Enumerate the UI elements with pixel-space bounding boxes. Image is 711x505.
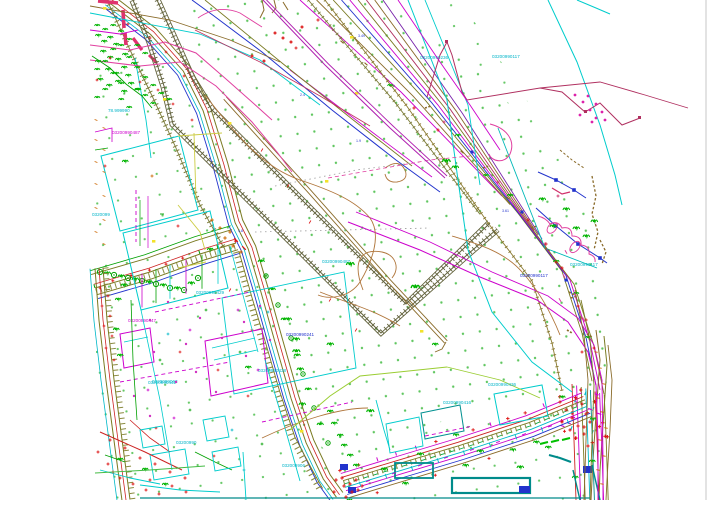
svg-text:03200990: 03200990	[176, 440, 197, 445]
svg-text:03200990236: 03200990236	[420, 55, 449, 60]
svg-text:3.49: 3.49	[358, 34, 365, 38]
svg-text:1.9: 1.9	[356, 139, 361, 143]
svg-text:78.999990: 78.999990	[108, 108, 130, 113]
svg-text:03200990416: 03200990416	[443, 400, 472, 405]
svg-text:03200990241: 03200990241	[286, 332, 315, 337]
svg-text:032009906: 032009906	[282, 463, 305, 468]
svg-text:03200990438: 03200990438	[258, 368, 287, 373]
svg-text:03200990436: 03200990436	[488, 382, 517, 387]
svg-text:03200990429: 03200990429	[196, 290, 225, 295]
svg-text:03200990447: 03200990447	[128, 318, 157, 323]
svg-text:0320099: 0320099	[92, 212, 110, 217]
svg-text:03200990117: 03200990117	[520, 273, 548, 278]
svg-text:03200990487: 03200990487	[112, 130, 141, 135]
svg-text:3.61: 3.61	[502, 209, 509, 213]
svg-text:03200990487: 03200990487	[322, 259, 351, 264]
svg-text:2.4: 2.4	[300, 93, 305, 97]
svg-text:4.8: 4.8	[238, 229, 243, 233]
